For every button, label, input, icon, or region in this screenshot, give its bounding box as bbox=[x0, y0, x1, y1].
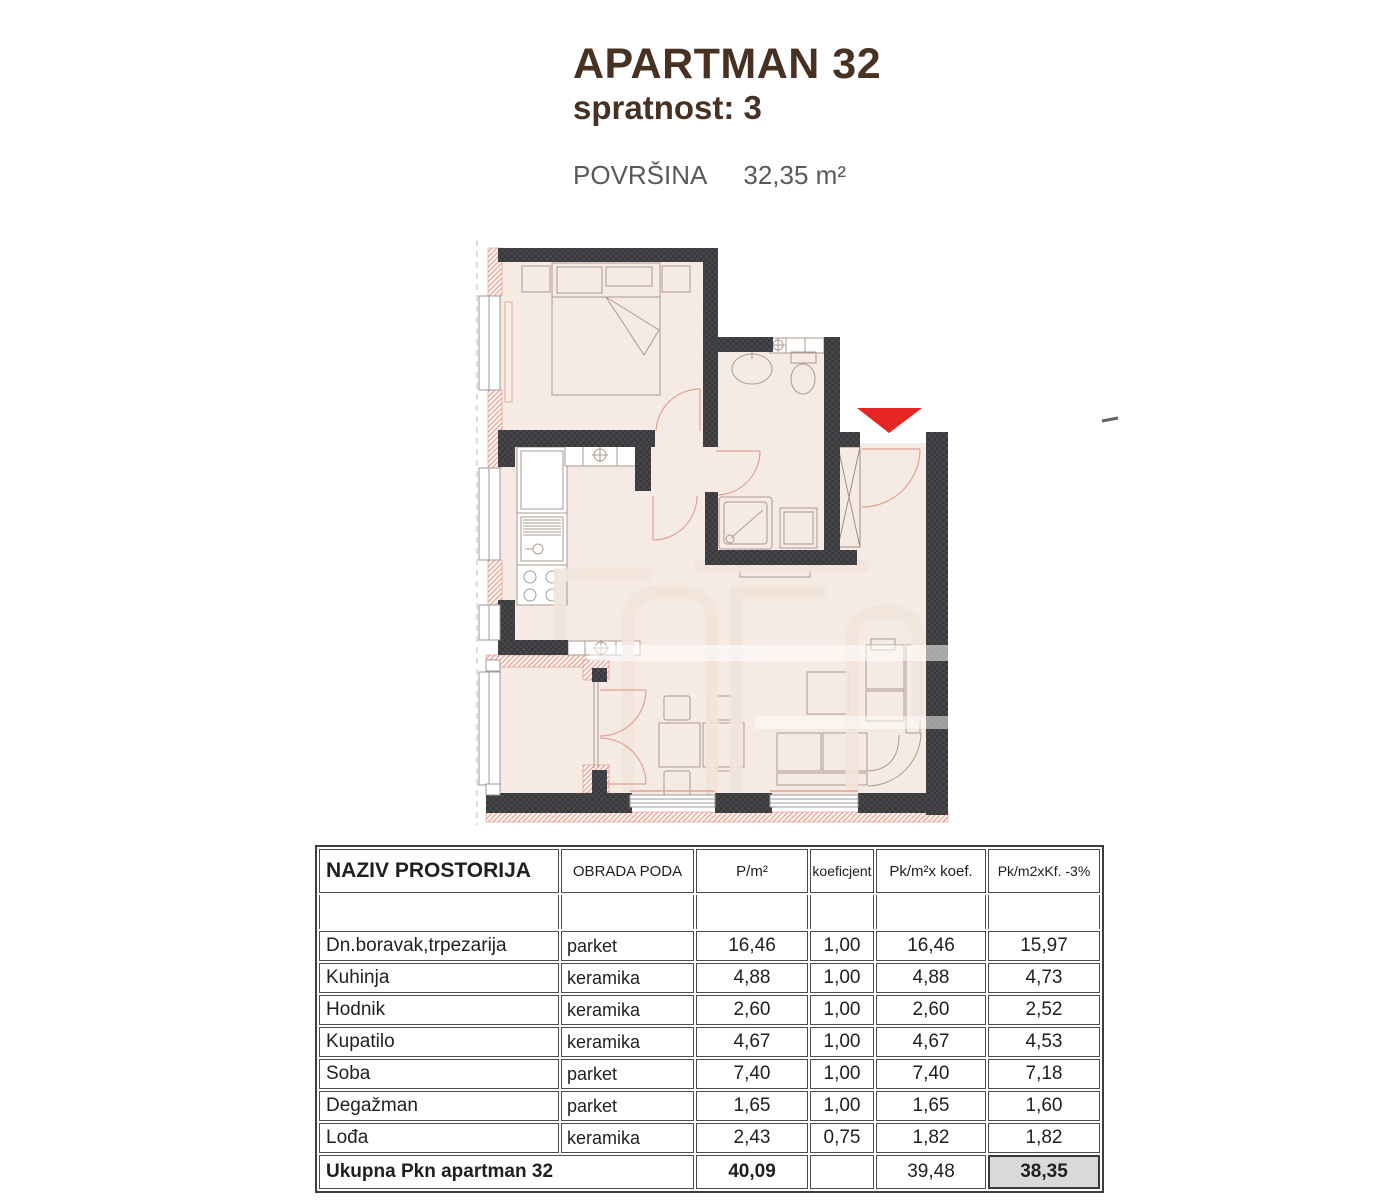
cell-pk3: 15,97 bbox=[988, 931, 1100, 961]
room-row: Degažman parket 1,65 1,00 1,65 1,60 bbox=[319, 1091, 1100, 1121]
cell-koef: 0,75 bbox=[810, 1123, 874, 1153]
cell-pk: 4,88 bbox=[876, 963, 986, 993]
room-row: Kuhinja keramika 4,88 1,00 4,88 4,73 bbox=[319, 963, 1100, 993]
column-header-pm2: P/m² bbox=[696, 849, 808, 893]
total-p: 40,09 bbox=[696, 1155, 808, 1189]
room-dnevni-boravak bbox=[596, 488, 926, 795]
stray-mark bbox=[1102, 418, 1118, 421]
cell-obrada: keramika bbox=[561, 1123, 694, 1153]
cell-naziv: Kuhinja bbox=[319, 963, 559, 993]
cell-pk: 1,82 bbox=[876, 1123, 986, 1153]
column-header-pk-koef: Pk/m²x koef. bbox=[876, 849, 986, 893]
cell-naziv: Hodnik bbox=[319, 995, 559, 1025]
cell-pk: 16,46 bbox=[876, 931, 986, 961]
room-row: Soba parket 7,40 1,00 7,40 7,18 bbox=[319, 1059, 1100, 1089]
cell-naziv: Kupatilo bbox=[319, 1027, 559, 1057]
cell-obrada: keramika bbox=[561, 963, 694, 993]
cell-pk: 1,65 bbox=[876, 1091, 986, 1121]
column-header-obrada: OBRADA PODA bbox=[561, 849, 694, 893]
column-header-pk-minus3: Pk/m2xKf. -3% bbox=[988, 849, 1100, 893]
room-row: Lođa keramika 2,43 0,75 1,82 1,82 bbox=[319, 1123, 1100, 1153]
cell-p: 4,67 bbox=[696, 1027, 808, 1057]
header-row: NAZIV PROSTORIJA OBRADA PODA P/m² koefic… bbox=[319, 849, 1100, 893]
total-koef bbox=[810, 1155, 874, 1189]
area-line: POVRŠINA 32,35 m² bbox=[573, 160, 846, 191]
total-row: Ukupna Pkn apartman 32 40,09 39,48 38,35 bbox=[319, 1155, 1100, 1189]
cell-pk3: 2,52 bbox=[988, 995, 1100, 1025]
column-header-koeficjent: koeficjent bbox=[810, 849, 874, 893]
floor-label: spratnost: 3 bbox=[573, 89, 881, 127]
cell-pk3: 1,82 bbox=[988, 1123, 1100, 1153]
cell-p: 4,88 bbox=[696, 963, 808, 993]
cell-p: 2,43 bbox=[696, 1123, 808, 1153]
column-header-naziv: NAZIV PROSTORIJA bbox=[319, 849, 559, 893]
area-label: POVRŠINA bbox=[573, 160, 707, 191]
total-pk: 39,48 bbox=[876, 1155, 986, 1189]
cell-obrada: keramika bbox=[561, 995, 694, 1025]
spacer-row bbox=[319, 895, 1100, 929]
cell-naziv: Lođa bbox=[319, 1123, 559, 1153]
cell-koef: 1,00 bbox=[810, 1059, 874, 1089]
cell-p: 7,40 bbox=[696, 1059, 808, 1089]
cell-pk3: 4,53 bbox=[988, 1027, 1100, 1057]
room-row: Hodnik keramika 2,60 1,00 2,60 2,52 bbox=[319, 995, 1100, 1025]
cell-koef: 1,00 bbox=[810, 1027, 874, 1057]
cell-obrada: parket bbox=[561, 1091, 694, 1121]
cell-pk3: 1,60 bbox=[988, 1091, 1100, 1121]
page-root: APARTMAN 32 spratnost: 3 POVRŠINA 32,35 … bbox=[0, 0, 1397, 1200]
cell-pk: 7,40 bbox=[876, 1059, 986, 1089]
cell-pk: 2,60 bbox=[876, 995, 986, 1025]
cell-pk3: 4,73 bbox=[988, 963, 1100, 993]
cell-p: 1,65 bbox=[696, 1091, 808, 1121]
cell-koef: 1,00 bbox=[810, 931, 874, 961]
cell-naziv: Dn.boravak,trpezarija bbox=[319, 931, 559, 961]
floor-plan bbox=[460, 230, 1160, 830]
total-pk3: 38,35 bbox=[988, 1155, 1100, 1189]
rooms-table: NAZIV PROSTORIJA OBRADA PODA P/m² koefic… bbox=[315, 845, 1104, 1193]
cell-koef: 1,00 bbox=[810, 995, 874, 1025]
room-row: Kupatilo keramika 4,67 1,00 4,67 4,53 bbox=[319, 1027, 1100, 1057]
cell-obrada: parket bbox=[561, 931, 694, 961]
entrance-arrow-icon bbox=[857, 408, 922, 433]
cell-koef: 1,00 bbox=[810, 963, 874, 993]
room-degazman bbox=[486, 660, 598, 795]
radiator bbox=[505, 302, 512, 402]
room-row: Dn.boravak,trpezarija parket 16,46 1,00 … bbox=[319, 931, 1100, 961]
cell-obrada: keramika bbox=[561, 1027, 694, 1057]
cell-pk3: 7,18 bbox=[988, 1059, 1100, 1089]
total-label: Ukupna Pkn apartman 32 bbox=[319, 1155, 694, 1189]
cell-naziv: Soba bbox=[319, 1059, 559, 1089]
cell-naziv: Degažman bbox=[319, 1091, 559, 1121]
cell-pk: 4,67 bbox=[876, 1027, 986, 1057]
cell-p: 2,60 bbox=[696, 995, 808, 1025]
apartment-title: APARTMAN 32 bbox=[573, 42, 881, 87]
cell-obrada: parket bbox=[561, 1059, 694, 1089]
cell-p: 16,46 bbox=[696, 931, 808, 961]
table-rows: Dn.boravak,trpezarija parket 16,46 1,00 … bbox=[319, 931, 1100, 1153]
cell-koef: 1,00 bbox=[810, 1091, 874, 1121]
area-value: 32,35 m² bbox=[743, 160, 846, 191]
title-block: APARTMAN 32 spratnost: 3 bbox=[573, 42, 881, 127]
